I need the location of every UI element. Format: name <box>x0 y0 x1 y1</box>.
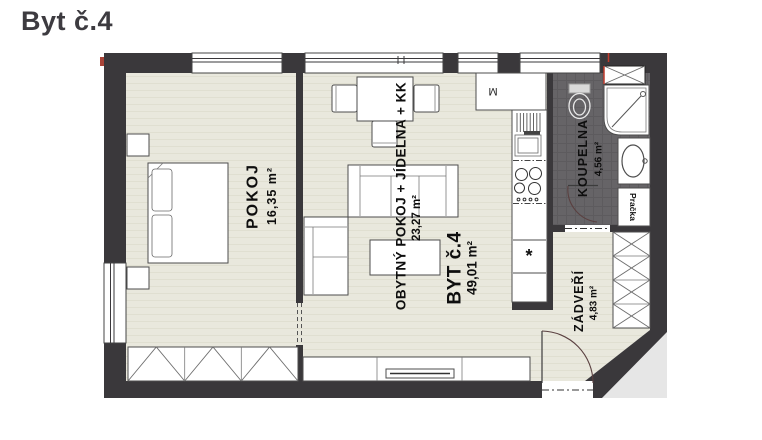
label-pokoj: POKOJ <box>245 163 262 229</box>
m-cabinet <box>476 73 546 110</box>
wardrobe-pokoj <box>128 347 298 381</box>
window-pokoj-top <box>192 53 282 73</box>
label-apartment-area: 49,01 m² <box>465 240 480 295</box>
floor-plan: POKOJ 16,35 m² OBYTNÝ POKOJ + JÍDELNA + … <box>0 0 762 440</box>
window-bath-top <box>520 53 600 73</box>
label-fridge-symbol: * <box>525 246 532 266</box>
label-washer: Pračka <box>628 193 638 221</box>
label-obytny: OBYTNÝ POKOJ + JÍDELNA + KK <box>394 82 409 310</box>
kitchen <box>512 110 547 302</box>
label-apartment: BYT č.4 <box>445 231 466 304</box>
label-koupelna: KOUPELNA <box>576 119 590 197</box>
window-kitchen-top <box>458 53 498 73</box>
label-zadveri: ZÁDVEŘÍ <box>571 270 586 332</box>
nightstand <box>127 267 149 289</box>
floor-plan-page: Byt č.4 <box>0 0 762 440</box>
shower <box>604 85 649 135</box>
label-pokoj-area: 16,35 m² <box>265 167 279 225</box>
red-mark-left <box>100 57 104 66</box>
label-m: M <box>488 85 497 97</box>
label-koupelna-area: 4,56 m² <box>594 141 605 176</box>
bathroom-sink <box>618 138 650 184</box>
tv-sideboard <box>303 357 530 381</box>
wardrobe-zadveri <box>613 232 650 328</box>
label-zadveri-area: 4,83 m² <box>589 285 600 320</box>
bed <box>148 163 228 263</box>
nightstand <box>127 134 149 156</box>
window-pokoj-left <box>104 263 126 343</box>
window-living-top <box>305 53 443 73</box>
label-obytny-area: 23,27 m² <box>411 195 423 241</box>
